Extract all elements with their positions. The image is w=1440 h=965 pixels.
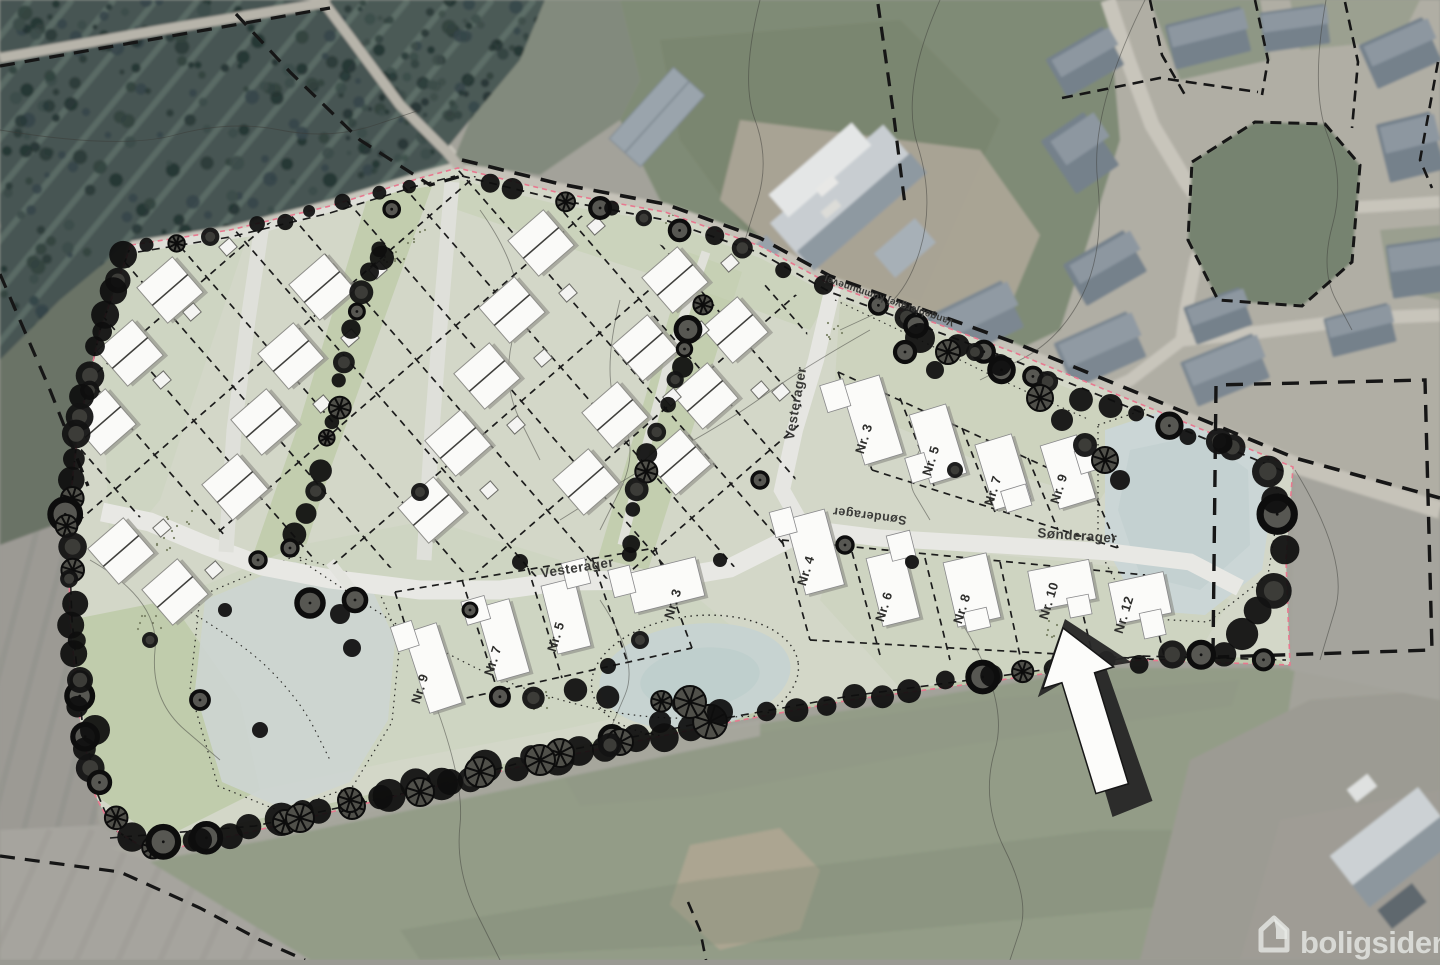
- svg-text:boligsiden: boligsiden: [1300, 925, 1440, 960]
